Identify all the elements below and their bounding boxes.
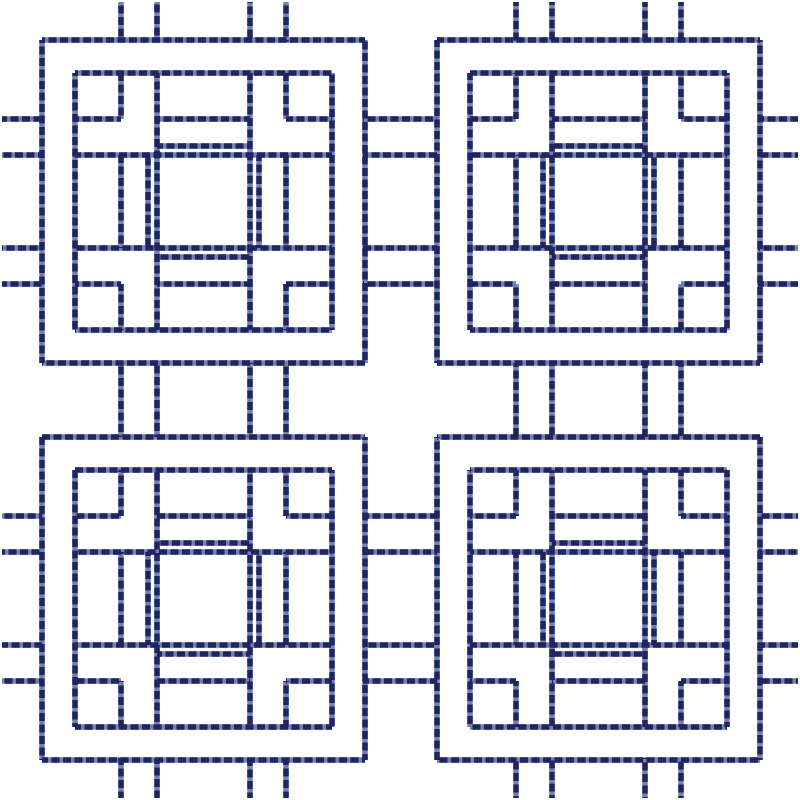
embroidery-pattern-page: [0, 0, 800, 800]
quilt-lattice-pattern: [0, 0, 800, 800]
